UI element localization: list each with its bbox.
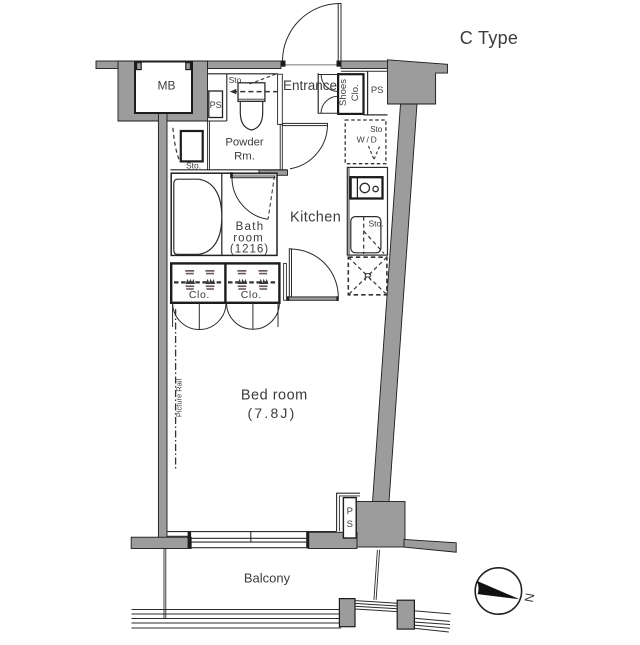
svg-text:P: P xyxy=(347,506,353,517)
svg-text:Entrance: Entrance xyxy=(283,78,337,93)
svg-text:PS: PS xyxy=(210,100,222,110)
svg-text:Sto: Sto xyxy=(370,125,383,134)
svg-text:Sto.: Sto. xyxy=(186,160,201,170)
svg-text:(7.8J): (7.8J) xyxy=(248,405,297,421)
svg-text:W/D: W/D xyxy=(357,135,379,145)
svg-text:Balcony: Balcony xyxy=(244,571,291,586)
svg-text:Powder: Powder xyxy=(225,137,264,149)
svg-text:Shoes: Shoes xyxy=(338,79,349,106)
svg-text:Kitchen: Kitchen xyxy=(290,209,341,225)
svg-text:S: S xyxy=(347,519,353,530)
svg-text:R: R xyxy=(364,272,372,284)
svg-text:PS: PS xyxy=(371,85,384,96)
svg-text:(1216): (1216) xyxy=(230,243,269,255)
svg-text:MB: MB xyxy=(158,79,176,93)
svg-text:Clo.: Clo. xyxy=(350,84,361,101)
svg-text:Bath: Bath xyxy=(236,221,265,233)
svg-text:C Type: C Type xyxy=(460,28,519,48)
svg-text:Rm.: Rm. xyxy=(234,151,255,163)
svg-text:Clo.: Clo. xyxy=(189,289,210,301)
svg-text:Clo.: Clo. xyxy=(241,289,262,301)
svg-text:Picture Rail: Picture Rail xyxy=(175,379,184,418)
svg-text:Sto.: Sto. xyxy=(368,219,383,229)
svg-text:Bed room: Bed room xyxy=(241,388,308,404)
